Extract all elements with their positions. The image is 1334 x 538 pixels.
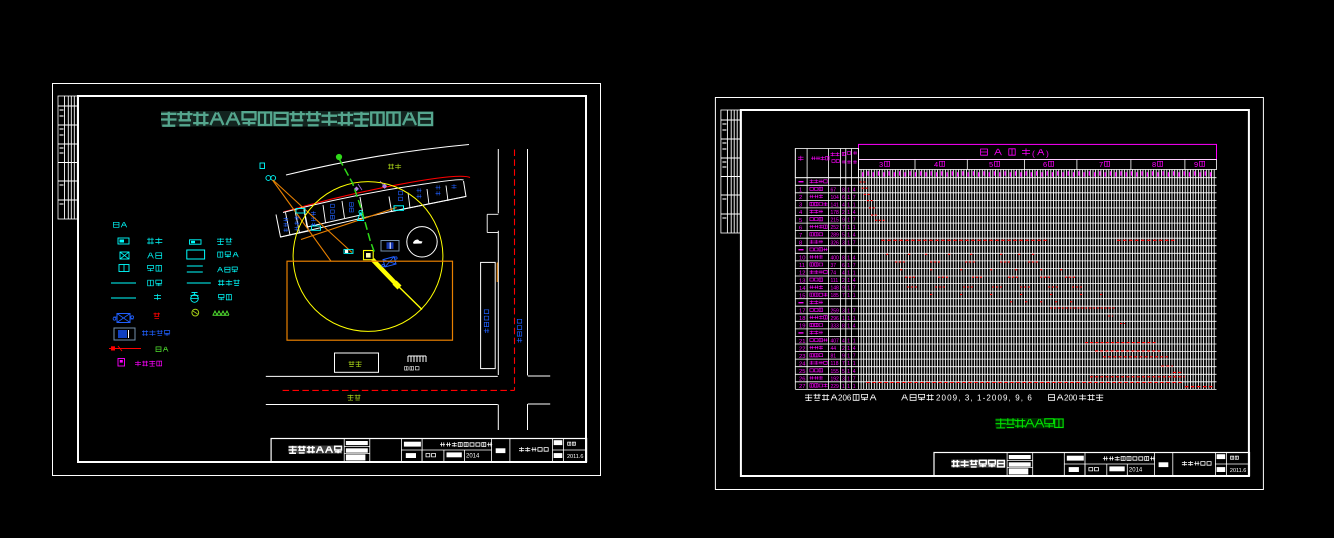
svg-text:4: 4 (853, 278, 856, 284)
svg-text:10: 10 (799, 256, 805, 262)
svg-text:178: 178 (831, 210, 840, 216)
svg-text:2: 2 (799, 195, 802, 201)
svg-text:229: 229 (831, 384, 840, 390)
svg-text:326: 326 (831, 240, 840, 246)
svg-text:7: 7 (1099, 160, 1103, 169)
svg-text:1: 1 (847, 308, 850, 314)
svg-text:2009, 3, 1-2009, 9, 6: 2009, 3, 1-2009, 9, 6 (936, 394, 1033, 403)
svg-text:1: 1 (847, 278, 850, 284)
svg-text:9: 9 (1194, 160, 1198, 169)
svg-text:192: 192 (831, 376, 840, 382)
svg-text:1: 1 (847, 255, 850, 261)
svg-text:7: 7 (853, 240, 856, 246)
svg-text:4: 4 (853, 369, 856, 375)
svg-text:118: 118 (831, 361, 839, 367)
svg-text:3: 3 (799, 203, 802, 209)
svg-text:1: 1 (853, 271, 856, 277)
svg-text:104: 104 (831, 195, 840, 201)
svg-text:15: 15 (799, 293, 805, 299)
svg-text:19: 19 (799, 324, 805, 330)
svg-text:1: 1 (847, 293, 850, 299)
svg-text:44: 44 (831, 346, 837, 352)
svg-text:17: 17 (799, 309, 805, 315)
svg-text:407: 407 (831, 339, 840, 345)
svg-text:289: 289 (831, 233, 840, 239)
svg-text:4: 4 (853, 323, 856, 329)
svg-text:1: 1 (847, 361, 850, 367)
svg-text:1: 1 (847, 271, 850, 277)
svg-text:1: 1 (847, 384, 850, 390)
svg-text:2: 2 (842, 210, 845, 216)
svg-text:7: 7 (799, 233, 802, 239)
svg-text:8: 8 (1152, 160, 1156, 169)
svg-text:22: 22 (799, 346, 805, 352)
svg-text:1: 1 (847, 346, 850, 352)
svg-text:155: 155 (831, 369, 840, 375)
svg-text:8: 8 (842, 255, 845, 261)
svg-text:4: 4 (853, 255, 856, 261)
svg-text:27: 27 (799, 384, 805, 390)
svg-text:1: 1 (847, 354, 850, 360)
svg-text:23: 23 (799, 354, 805, 360)
svg-text:6: 6 (842, 263, 845, 269)
svg-text:7: 7 (853, 218, 856, 224)
svg-text:1: 1 (842, 316, 845, 322)
svg-text:1: 1 (847, 240, 850, 246)
svg-text:200: 200 (1064, 394, 1078, 403)
svg-text:24: 24 (799, 361, 806, 367)
svg-text:2011.6: 2011.6 (1230, 468, 1246, 474)
svg-text:8: 8 (799, 241, 802, 247)
svg-text:1: 1 (847, 369, 850, 375)
svg-text:3: 3 (842, 376, 845, 382)
svg-text:8: 8 (842, 323, 845, 329)
svg-text:3: 3 (879, 160, 883, 169)
svg-text:1: 1 (847, 195, 850, 201)
svg-text:2014: 2014 (466, 454, 480, 460)
svg-text:4: 4 (842, 203, 845, 209)
svg-text:(: ( (1032, 149, 1035, 159)
svg-text:1: 1 (853, 293, 856, 299)
svg-text:5: 5 (989, 160, 993, 169)
svg-text:1: 1 (847, 210, 850, 216)
svg-text:74: 74 (831, 271, 837, 277)
svg-text:1: 1 (853, 384, 856, 390)
svg-text:206: 206 (838, 394, 852, 403)
svg-text:7: 7 (853, 263, 856, 269)
svg-text:13: 13 (799, 278, 805, 284)
svg-text:14: 14 (799, 286, 806, 292)
svg-text:1: 1 (847, 263, 850, 269)
svg-text:7: 7 (853, 308, 856, 314)
svg-text:12: 12 (799, 271, 805, 277)
svg-text:1: 1 (847, 316, 850, 322)
svg-text:2: 2 (842, 278, 845, 284)
svg-text:7: 7 (853, 354, 856, 360)
svg-text:6: 6 (1043, 160, 1047, 169)
svg-text:1: 1 (799, 188, 802, 194)
svg-text:1: 1 (853, 203, 856, 209)
svg-text:1: 1 (853, 361, 856, 367)
svg-text:111: 111 (831, 278, 839, 284)
svg-text:252: 252 (831, 225, 840, 231)
svg-text:1: 1 (847, 323, 850, 329)
svg-text:7: 7 (842, 361, 845, 367)
svg-text:4: 4 (853, 210, 856, 216)
svg-text:7: 7 (853, 286, 856, 292)
svg-text:4: 4 (853, 233, 856, 239)
svg-text:4: 4 (842, 271, 845, 277)
svg-text:4: 4 (842, 339, 845, 345)
svg-text:1: 1 (853, 339, 856, 345)
svg-text:1: 1 (853, 225, 856, 231)
svg-text:6: 6 (842, 195, 845, 201)
svg-text:1: 1 (842, 384, 845, 390)
svg-text:4: 4 (853, 346, 856, 352)
svg-text:3: 3 (842, 240, 845, 246)
svg-text:9: 9 (842, 354, 845, 360)
svg-text:3: 3 (842, 308, 845, 314)
svg-text:333: 333 (831, 323, 840, 329)
svg-text:67: 67 (831, 187, 837, 193)
svg-text:2: 2 (842, 346, 845, 352)
svg-text:9: 9 (842, 218, 845, 224)
svg-text:25: 25 (799, 369, 805, 375)
svg-text:11: 11 (799, 263, 805, 269)
svg-text:9: 9 (842, 286, 845, 292)
svg-text:5: 5 (799, 218, 802, 224)
svg-text:215: 215 (831, 218, 840, 224)
svg-text:8: 8 (842, 187, 845, 193)
svg-text:1: 1 (847, 187, 850, 193)
svg-text:7: 7 (853, 376, 856, 382)
svg-text:7: 7 (842, 293, 845, 299)
svg-text:): ) (1046, 149, 1049, 159)
svg-text:7: 7 (853, 195, 856, 201)
svg-text:18: 18 (799, 316, 805, 322)
svg-text:4: 4 (853, 187, 856, 193)
svg-text:259: 259 (831, 308, 840, 314)
svg-text:1: 1 (847, 339, 850, 345)
svg-text:1: 1 (853, 316, 856, 322)
svg-text:296: 296 (831, 316, 840, 322)
svg-text:400: 400 (831, 255, 840, 261)
svg-text:1: 1 (847, 218, 850, 224)
svg-text:1: 1 (847, 203, 850, 209)
svg-text:185: 185 (831, 293, 840, 299)
svg-text:2011.6: 2011.6 (567, 454, 583, 460)
svg-text:1: 1 (847, 225, 850, 231)
svg-text:81: 81 (831, 354, 837, 360)
svg-text:21: 21 (799, 339, 805, 345)
svg-text:148: 148 (831, 286, 840, 292)
svg-text:1: 1 (847, 286, 850, 292)
svg-text:4: 4 (934, 160, 938, 169)
svg-text:1: 1 (847, 233, 850, 239)
svg-text:5: 5 (842, 233, 845, 239)
svg-text:6: 6 (799, 225, 802, 231)
svg-text:7: 7 (842, 225, 845, 231)
svg-text:1: 1 (847, 376, 850, 382)
svg-text:5: 5 (842, 369, 845, 375)
svg-text:26: 26 (799, 377, 805, 383)
svg-text:2014: 2014 (1129, 468, 1143, 474)
svg-text:141: 141 (831, 203, 840, 209)
svg-text:37: 37 (831, 263, 837, 269)
